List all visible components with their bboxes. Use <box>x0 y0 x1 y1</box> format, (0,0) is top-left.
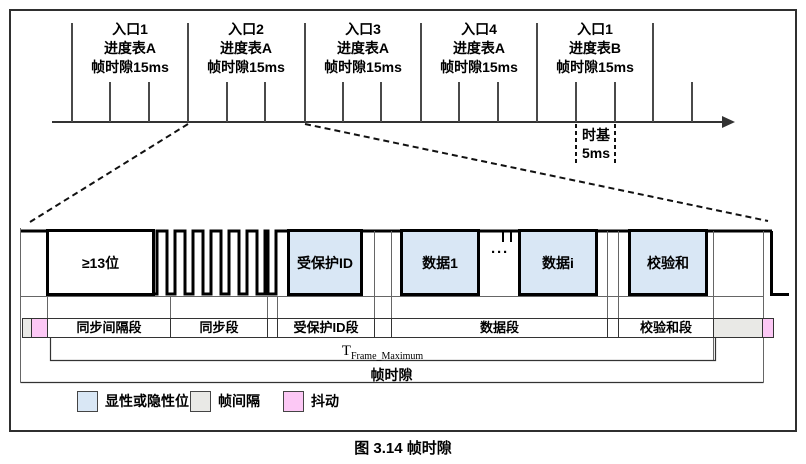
callout-dashed-right <box>305 124 768 221</box>
legend-item-interframe: 帧间隔 <box>190 390 260 412</box>
segment-gap-2 <box>374 318 392 338</box>
legend-item-jitter: 抖动 <box>283 390 339 412</box>
timeline-entry-2: 入口2 进度表A 帧时隙15ms <box>188 20 304 77</box>
time-base-ticks <box>110 82 692 122</box>
jitter-cell-right <box>762 318 774 338</box>
timeline-entry-1: 入口1 进度表A 帧时隙15ms <box>72 20 188 77</box>
axis-arrowhead-icon <box>722 116 735 128</box>
interframe-cell-right <box>713 318 763 338</box>
data1-field-box: 数据1 <box>400 229 480 296</box>
jitter-cell-left <box>31 318 48 338</box>
segment-protected-id: 受保护ID段 <box>277 318 375 338</box>
legend-swatch-gray <box>190 391 211 412</box>
protected-id-field-box: 受保护ID <box>287 229 363 296</box>
datai-field-box: 数据i <box>518 229 598 296</box>
timeline-entry-5: 入口1 进度表B 帧时隙15ms <box>537 20 653 77</box>
segment-sync-break: 同步间隔段 <box>47 318 171 338</box>
legend-swatch-blue <box>77 391 98 412</box>
segment-sync: 同步段 <box>170 318 268 338</box>
sync-field-square-wave <box>155 231 288 294</box>
segment-checksum: 校验和段 <box>618 318 714 338</box>
sync-break-field-box: ≥13位 <box>46 229 155 296</box>
segment-data: 数据段 <box>391 318 608 338</box>
time-base-label: 时基 5ms <box>578 126 614 162</box>
timeline-entry-3: 入口3 进度表A 帧时隙15ms <box>305 20 421 77</box>
legend-item-dominant-recessive: 显性或隐性位 <box>77 390 189 412</box>
figure-caption: 图 3.14 帧时隙 <box>0 437 806 458</box>
t-frame-maximum-label: TFrame_Maximum <box>50 343 715 362</box>
timeline-entry-4: 入口4 进度表A 帧时隙15ms <box>421 20 537 77</box>
checksum-field-box: 校验和 <box>628 229 708 296</box>
interbyte-stub-ticks <box>503 231 511 242</box>
legend-swatch-pink <box>283 391 304 412</box>
frame-slot-label: 帧时隙 <box>20 365 763 385</box>
figure-frame-slot-diagram: 入口1 进度表A 帧时隙15ms 入口2 进度表A 帧时隙15ms 入口3 进度… <box>0 0 806 464</box>
segment-connector-lines <box>48 296 278 318</box>
waveform-end-drop <box>772 231 790 295</box>
data-ellipsis: ··· <box>481 244 519 261</box>
callout-dashed-left <box>30 124 188 222</box>
